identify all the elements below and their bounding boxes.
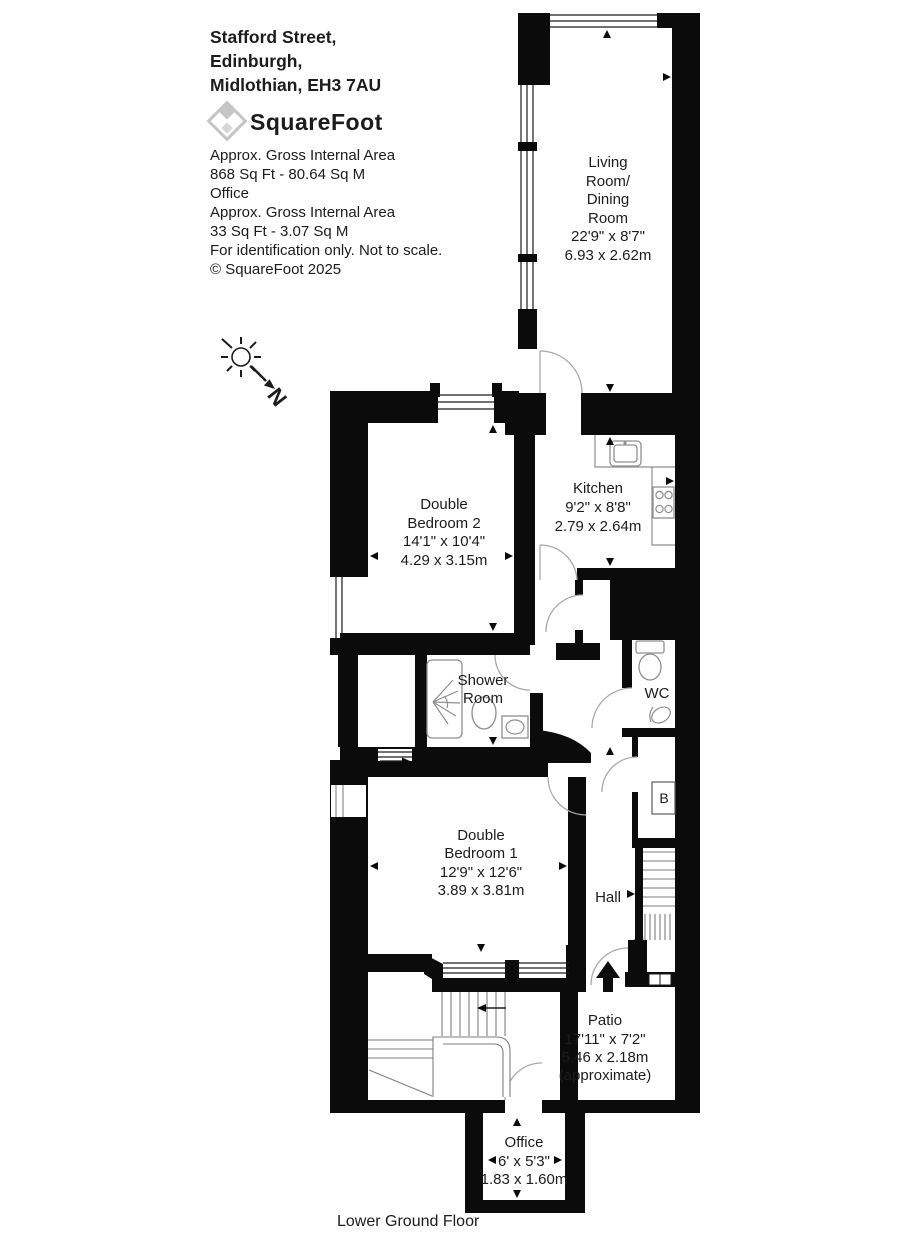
svg-text:4.29 x 3.15m: 4.29 x 3.15m	[401, 552, 488, 569]
floor-plan-svg: Stafford Street, Edinburgh, Midlothian, …	[0, 0, 900, 1247]
svg-text:14'1" x 10'4": 14'1" x 10'4"	[403, 533, 485, 550]
svg-text:Kitchen: Kitchen	[573, 480, 623, 497]
svg-text:17'11" x 7'2": 17'11" x 7'2"	[564, 1031, 645, 1048]
svg-text:2.79 x 2.64m: 2.79 x 2.64m	[555, 518, 642, 535]
bedroom1-recess	[331, 785, 366, 817]
room-label-bedroom1: Double Bedroom 1 12'9" x 12'6" 3.89 x 3.…	[438, 827, 525, 899]
svg-text:(approximate): (approximate)	[559, 1067, 652, 1084]
floorplan-page: Stafford Street, Edinburgh, Midlothian, …	[0, 0, 900, 1247]
room-label-hall: Hall	[595, 889, 621, 906]
svg-text:3.89 x 3.81m: 3.89 x 3.81m	[438, 882, 525, 899]
svg-text:6.93 x 2.62m: 6.93 x 2.62m	[565, 247, 652, 264]
room-label-bedroom2: Double Bedroom 2 14'1" x 10'4" 4.29 x 3.…	[401, 496, 488, 569]
upper-staircase	[643, 852, 675, 940]
info-line: For identification only. Not to scale.	[210, 242, 442, 259]
svg-text:5.46 x 2.18m: 5.46 x 2.18m	[562, 1049, 649, 1066]
svg-text:Shower: Shower	[458, 672, 509, 689]
info-line: Approx. Gross Internal Area	[210, 204, 396, 221]
svg-text:Double: Double	[457, 827, 505, 844]
room-label-shower: Shower Room	[458, 672, 509, 707]
info-line: 33 Sq Ft - 3.07 Sq M	[210, 223, 348, 240]
svg-text:Room: Room	[588, 210, 628, 227]
info-line: 868 Sq Ft - 80.64 Sq M	[210, 166, 365, 183]
svg-text:9'2" x 8'8": 9'2" x 8'8"	[565, 499, 631, 516]
room-label-living-dining: Living Room/ Dining Room 22'9" x 8'7" 6.…	[565, 154, 652, 264]
svg-text:Room/: Room/	[586, 173, 631, 190]
address-line: Stafford Street,	[210, 27, 336, 47]
svg-text:12'9" x 12'6": 12'9" x 12'6"	[440, 864, 522, 881]
wc-toilet	[639, 654, 661, 680]
info-line: Approx. Gross Internal Area	[210, 147, 396, 164]
room-label-kitchen: Kitchen 9'2" x 8'8" 2.79 x 2.64m	[555, 480, 642, 535]
svg-text:1.83 x 1.60m: 1.83 x 1.60m	[481, 1171, 568, 1188]
svg-text:22'9" x 8'7": 22'9" x 8'7"	[571, 228, 645, 245]
squarefoot-logo-icon	[209, 103, 246, 140]
room-label-boiler: B	[659, 790, 668, 806]
svg-text:Double: Double	[420, 496, 468, 513]
header-block: Stafford Street, Edinburgh, Midlothian, …	[209, 27, 443, 278]
wc-fixtures	[636, 641, 673, 726]
svg-text:Office: Office	[505, 1134, 544, 1151]
compass-north-label: N	[262, 383, 291, 411]
svg-text:Patio: Patio	[588, 1012, 622, 1029]
address-line: Edinburgh,	[210, 51, 302, 71]
info-line: Office	[210, 185, 249, 202]
copyright-line: © SquareFoot 2025	[210, 261, 341, 278]
wc-cistern	[636, 641, 664, 653]
entrance-threshold	[649, 974, 671, 985]
compass-north-icon: N	[221, 337, 292, 411]
svg-text:Room: Room	[463, 690, 503, 707]
entrance-arrow	[596, 961, 620, 992]
svg-text:Living: Living	[588, 154, 627, 171]
svg-text:6' x 5'3": 6' x 5'3"	[498, 1153, 550, 1170]
address-line: Midlothian, EH3 7AU	[210, 75, 381, 95]
squarefoot-logo-text: SquareFoot	[250, 109, 383, 135]
svg-text:Bedroom 2: Bedroom 2	[407, 515, 480, 532]
svg-text:Bedroom 1: Bedroom 1	[444, 845, 517, 862]
main-staircase	[368, 992, 510, 1097]
svg-text:Dining: Dining	[587, 191, 630, 208]
floor-label: Lower Ground Floor	[337, 1213, 480, 1230]
room-label-wc: WC	[645, 685, 670, 702]
